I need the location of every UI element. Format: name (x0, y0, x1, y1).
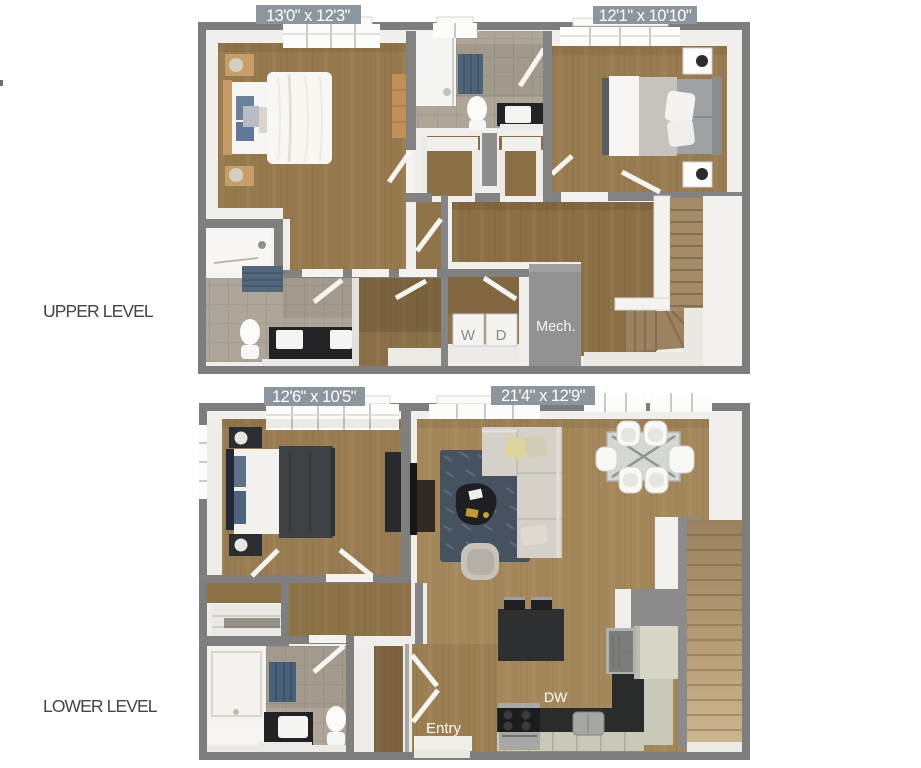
svg-text:13'0" x 12'3": 13'0" x 12'3" (266, 7, 351, 25)
svg-text:Mech.: Mech. (536, 319, 576, 335)
svg-text:12'1" x 10'10": 12'1" x 10'10" (599, 7, 692, 25)
svg-text:LOWER LEVEL: LOWER LEVEL (43, 696, 158, 716)
svg-text:UPPER LEVEL: UPPER LEVEL (43, 301, 154, 321)
svg-text:W: W (461, 327, 476, 344)
svg-text:12'6" x 10'5": 12'6" x 10'5" (272, 388, 357, 406)
svg-text:21'4" x 12'9": 21'4" x 12'9" (501, 387, 586, 405)
svg-text:D: D (496, 327, 507, 344)
svg-text:Entry: Entry (426, 720, 462, 737)
svg-text:DW: DW (544, 689, 568, 705)
